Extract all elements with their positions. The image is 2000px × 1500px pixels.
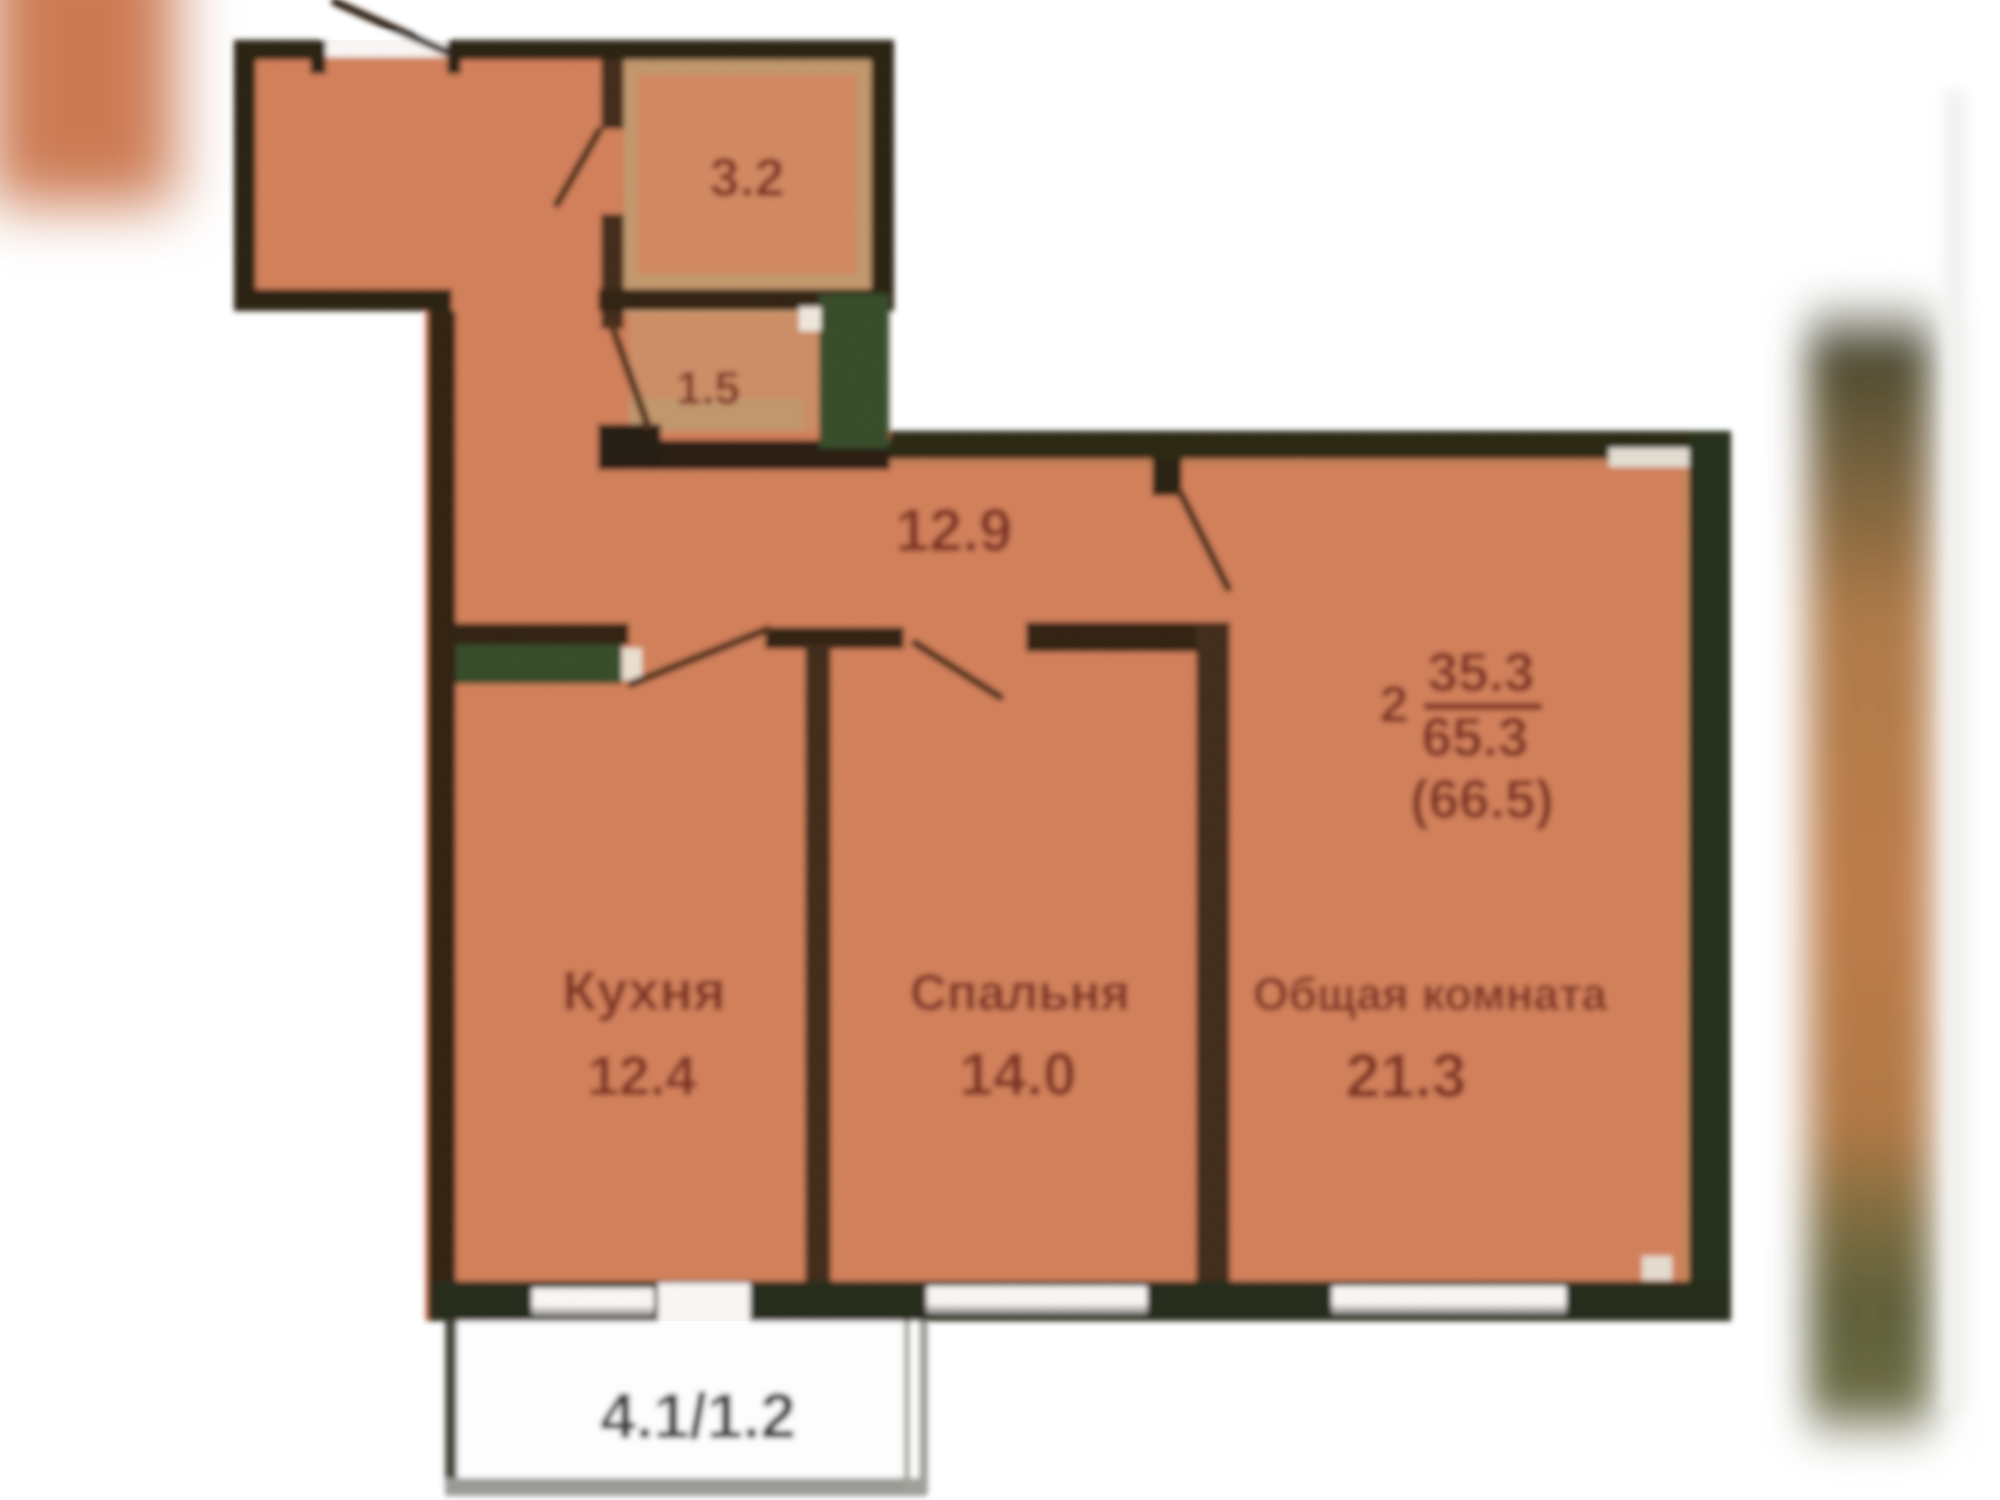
svg-text:4.1/1.2: 4.1/1.2	[600, 1380, 796, 1452]
